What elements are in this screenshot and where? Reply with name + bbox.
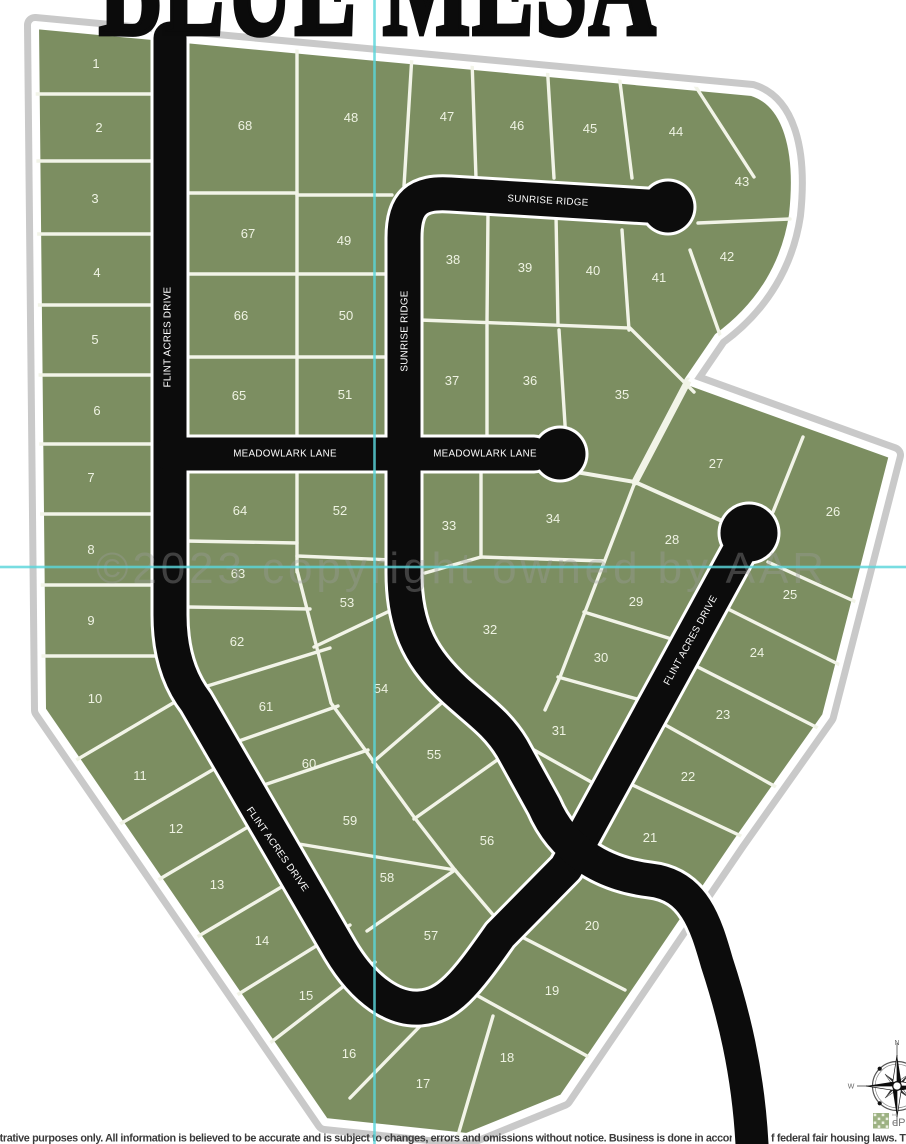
svg-text:42: 42: [720, 249, 734, 264]
svg-text:2: 2: [95, 120, 102, 135]
svg-text:10: 10: [88, 691, 102, 706]
svg-text:52: 52: [333, 503, 347, 518]
svg-text:65: 65: [232, 388, 246, 403]
svg-text:38: 38: [446, 252, 460, 267]
svg-text:30: 30: [594, 650, 608, 665]
svg-text:20: 20: [585, 918, 599, 933]
svg-text:22: 22: [681, 769, 695, 784]
svg-text:11: 11: [133, 768, 147, 783]
svg-text:31: 31: [552, 723, 566, 738]
svg-text:29: 29: [629, 594, 643, 609]
svg-text:59: 59: [343, 813, 357, 828]
svg-text:64: 64: [233, 503, 247, 518]
svg-text:FLINT ACRES DRIVE: FLINT ACRES DRIVE: [163, 286, 174, 387]
svg-text:15: 15: [299, 988, 313, 1003]
svg-text:61: 61: [259, 699, 273, 714]
svg-text:48: 48: [344, 110, 358, 125]
svg-text:ePL: ePL: [892, 1117, 906, 1129]
svg-text:17: 17: [416, 1076, 430, 1091]
svg-text:57: 57: [424, 928, 438, 943]
svg-text:55: 55: [427, 747, 441, 762]
svg-text:©2023 copyright owned by AAR: ©2023 copyright owned by AAR: [96, 544, 824, 593]
svg-text:46: 46: [510, 118, 524, 133]
svg-text:19: 19: [545, 983, 559, 998]
svg-text:24: 24: [750, 645, 764, 660]
svg-text:3: 3: [91, 191, 98, 206]
svg-text:47: 47: [440, 109, 454, 124]
svg-text:50: 50: [339, 308, 353, 323]
svg-text:9: 9: [87, 613, 94, 628]
svg-text:N: N: [894, 1040, 899, 1047]
svg-text:4: 4: [93, 265, 100, 280]
svg-text:BLUE MESA: BLUE MESA: [99, 0, 658, 66]
svg-text:56: 56: [480, 833, 494, 848]
svg-text:SUNRISE RIDGE: SUNRISE RIDGE: [400, 290, 411, 371]
svg-text:43: 43: [735, 174, 749, 189]
svg-text:27: 27: [709, 456, 723, 471]
svg-text:5: 5: [91, 332, 98, 347]
svg-text:54: 54: [374, 681, 388, 696]
svg-text:37: 37: [445, 373, 459, 388]
svg-text:34: 34: [546, 511, 560, 526]
svg-text:58: 58: [380, 870, 394, 885]
svg-text:13: 13: [210, 877, 224, 892]
svg-text:W: W: [848, 1084, 855, 1091]
svg-text:32: 32: [483, 622, 497, 637]
svg-text:51: 51: [338, 387, 352, 402]
svg-text:6: 6: [93, 403, 100, 418]
svg-text:26: 26: [826, 504, 840, 519]
svg-text:39: 39: [518, 260, 532, 275]
svg-text:16: 16: [342, 1046, 356, 1061]
svg-text:MEADOWLARK LANE: MEADOWLARK LANE: [233, 449, 337, 460]
svg-text:41: 41: [652, 270, 666, 285]
svg-text:68: 68: [238, 118, 252, 133]
svg-text:33: 33: [442, 518, 456, 533]
svg-text:35: 35: [615, 387, 629, 402]
svg-text:62: 62: [230, 634, 244, 649]
svg-text:60: 60: [302, 756, 316, 771]
svg-text:7: 7: [87, 470, 94, 485]
svg-text:18: 18: [500, 1050, 514, 1065]
svg-text:44: 44: [669, 124, 683, 139]
svg-text:67: 67: [241, 226, 255, 241]
svg-text:53: 53: [340, 595, 354, 610]
svg-text:49: 49: [337, 233, 351, 248]
svg-text:36: 36: [523, 373, 537, 388]
svg-text:14: 14: [255, 933, 269, 948]
svg-text:21: 21: [643, 830, 657, 845]
svg-text:txt: txt: [892, 1113, 896, 1117]
svg-text:66: 66: [234, 308, 248, 323]
svg-text:12: 12: [169, 821, 183, 836]
svg-text:40: 40: [586, 263, 600, 278]
svg-text:45: 45: [583, 121, 597, 136]
svg-text:MEADOWLARK LANE: MEADOWLARK LANE: [433, 449, 537, 460]
svg-text:23: 23: [716, 707, 730, 722]
svg-text:8: 8: [87, 542, 94, 557]
